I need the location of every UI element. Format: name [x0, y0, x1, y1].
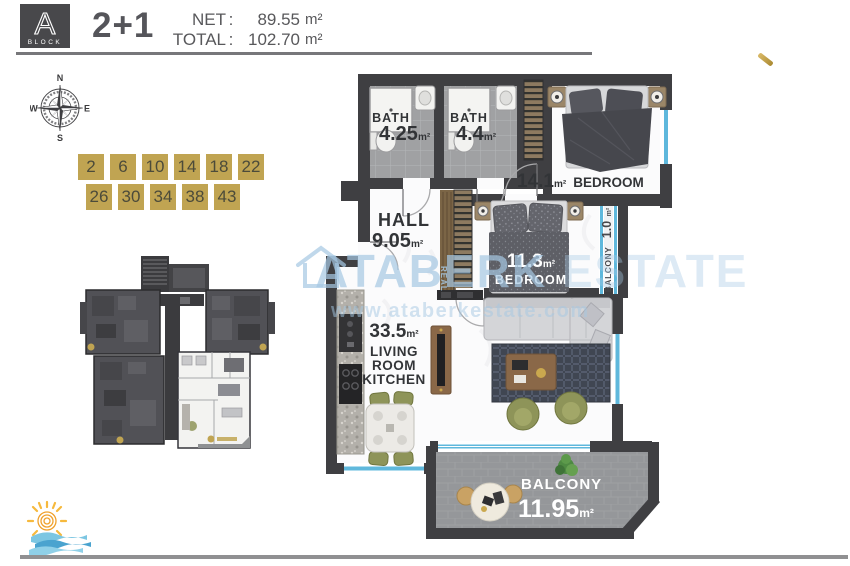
living-line1: LIVING [370, 344, 418, 359]
hall-wardrobe-rail [454, 190, 472, 296]
compass-north-label: N [57, 73, 64, 83]
floor-number-badge: 6 [110, 154, 136, 180]
floor-number-badge: 14 [174, 154, 200, 180]
floor-number-badge: 22 [238, 154, 264, 180]
net-separator: : [226, 10, 236, 30]
cooktop [339, 364, 362, 404]
sun-waves-logo [25, 495, 95, 557]
floor-number-badge: 26 [86, 184, 112, 210]
pillow [528, 203, 563, 233]
mini-floorplan [78, 250, 278, 460]
floor-numbers-row2: 26 30 34 38 43 [86, 184, 240, 210]
compass-south-label: S [57, 133, 63, 142]
total-separator: : [226, 30, 236, 50]
mini-unit-lower-left [94, 356, 164, 444]
compass-east-label: E [84, 104, 90, 114]
header-rule [16, 52, 592, 55]
total-label: TOTAL [170, 30, 226, 50]
total-row: TOTAL : 102.70 m² [170, 30, 330, 50]
area-summary: NET : 89.55 m² TOTAL : 102.70 m² [170, 10, 330, 50]
living-line2: ROOM [372, 358, 416, 373]
mini-unit-highlighted [178, 352, 250, 448]
floor-number-badge: 43 [214, 184, 240, 210]
tv [437, 334, 445, 386]
pillow [493, 204, 528, 235]
bedroom2-name: BEDROOM [495, 273, 567, 287]
floor-number-badge: 2 [78, 154, 104, 180]
closet-top [524, 80, 543, 160]
bedroom1-label: 14.1m²BEDROOM [517, 171, 644, 192]
dining-chair [368, 451, 388, 466]
dining-chair [394, 451, 414, 466]
net-value: 89.55 [236, 10, 300, 30]
total-unit: m² [300, 30, 330, 50]
unit-type: 2+1 [92, 6, 154, 46]
mini-stair-core [141, 256, 169, 292]
total-value: 102.70 [236, 30, 300, 50]
kitchen [337, 290, 364, 454]
mini-unit-upper-left [80, 290, 160, 354]
compass-west-label: W [30, 104, 38, 114]
net-unit: m² [300, 10, 330, 30]
mini-unit-upper-right [206, 290, 275, 354]
hall-name: HALL [378, 210, 430, 230]
block-letter: A [35, 6, 56, 41]
waves-icon [29, 532, 91, 556]
block-badge: A BLOCK [20, 4, 70, 48]
net-label: NET [170, 10, 226, 30]
block-word: BLOCK [28, 39, 63, 46]
floor-numbers-row1: 2 6 10 14 18 22 [78, 154, 264, 180]
footer-rule [20, 555, 848, 559]
living-line3: KITCHEN [362, 372, 426, 387]
main-balcony-name: BALCONY [521, 476, 602, 493]
floor-number-badge: 34 [150, 184, 176, 210]
main-floorplan: BATH 4.25m² BATH 4.4m² 14.1m²BEDROOM HAL… [290, 65, 690, 550]
floor-number-badge: 10 [142, 154, 168, 180]
net-row: NET : 89.55 m² [170, 10, 330, 30]
floor-number-badge: 30 [118, 184, 144, 210]
compass-rose: N S E W [30, 72, 90, 142]
floor-number-badge: 38 [182, 184, 208, 210]
floor-number-badge: 18 [206, 154, 232, 180]
gold-pencil-mark [757, 52, 773, 66]
coffee-table [506, 354, 556, 390]
bedroom1-furniture [548, 86, 666, 172]
floorplan-page: A BLOCK 2+1 NET : 89.55 m² TOTAL : 102.7… [0, 0, 850, 566]
